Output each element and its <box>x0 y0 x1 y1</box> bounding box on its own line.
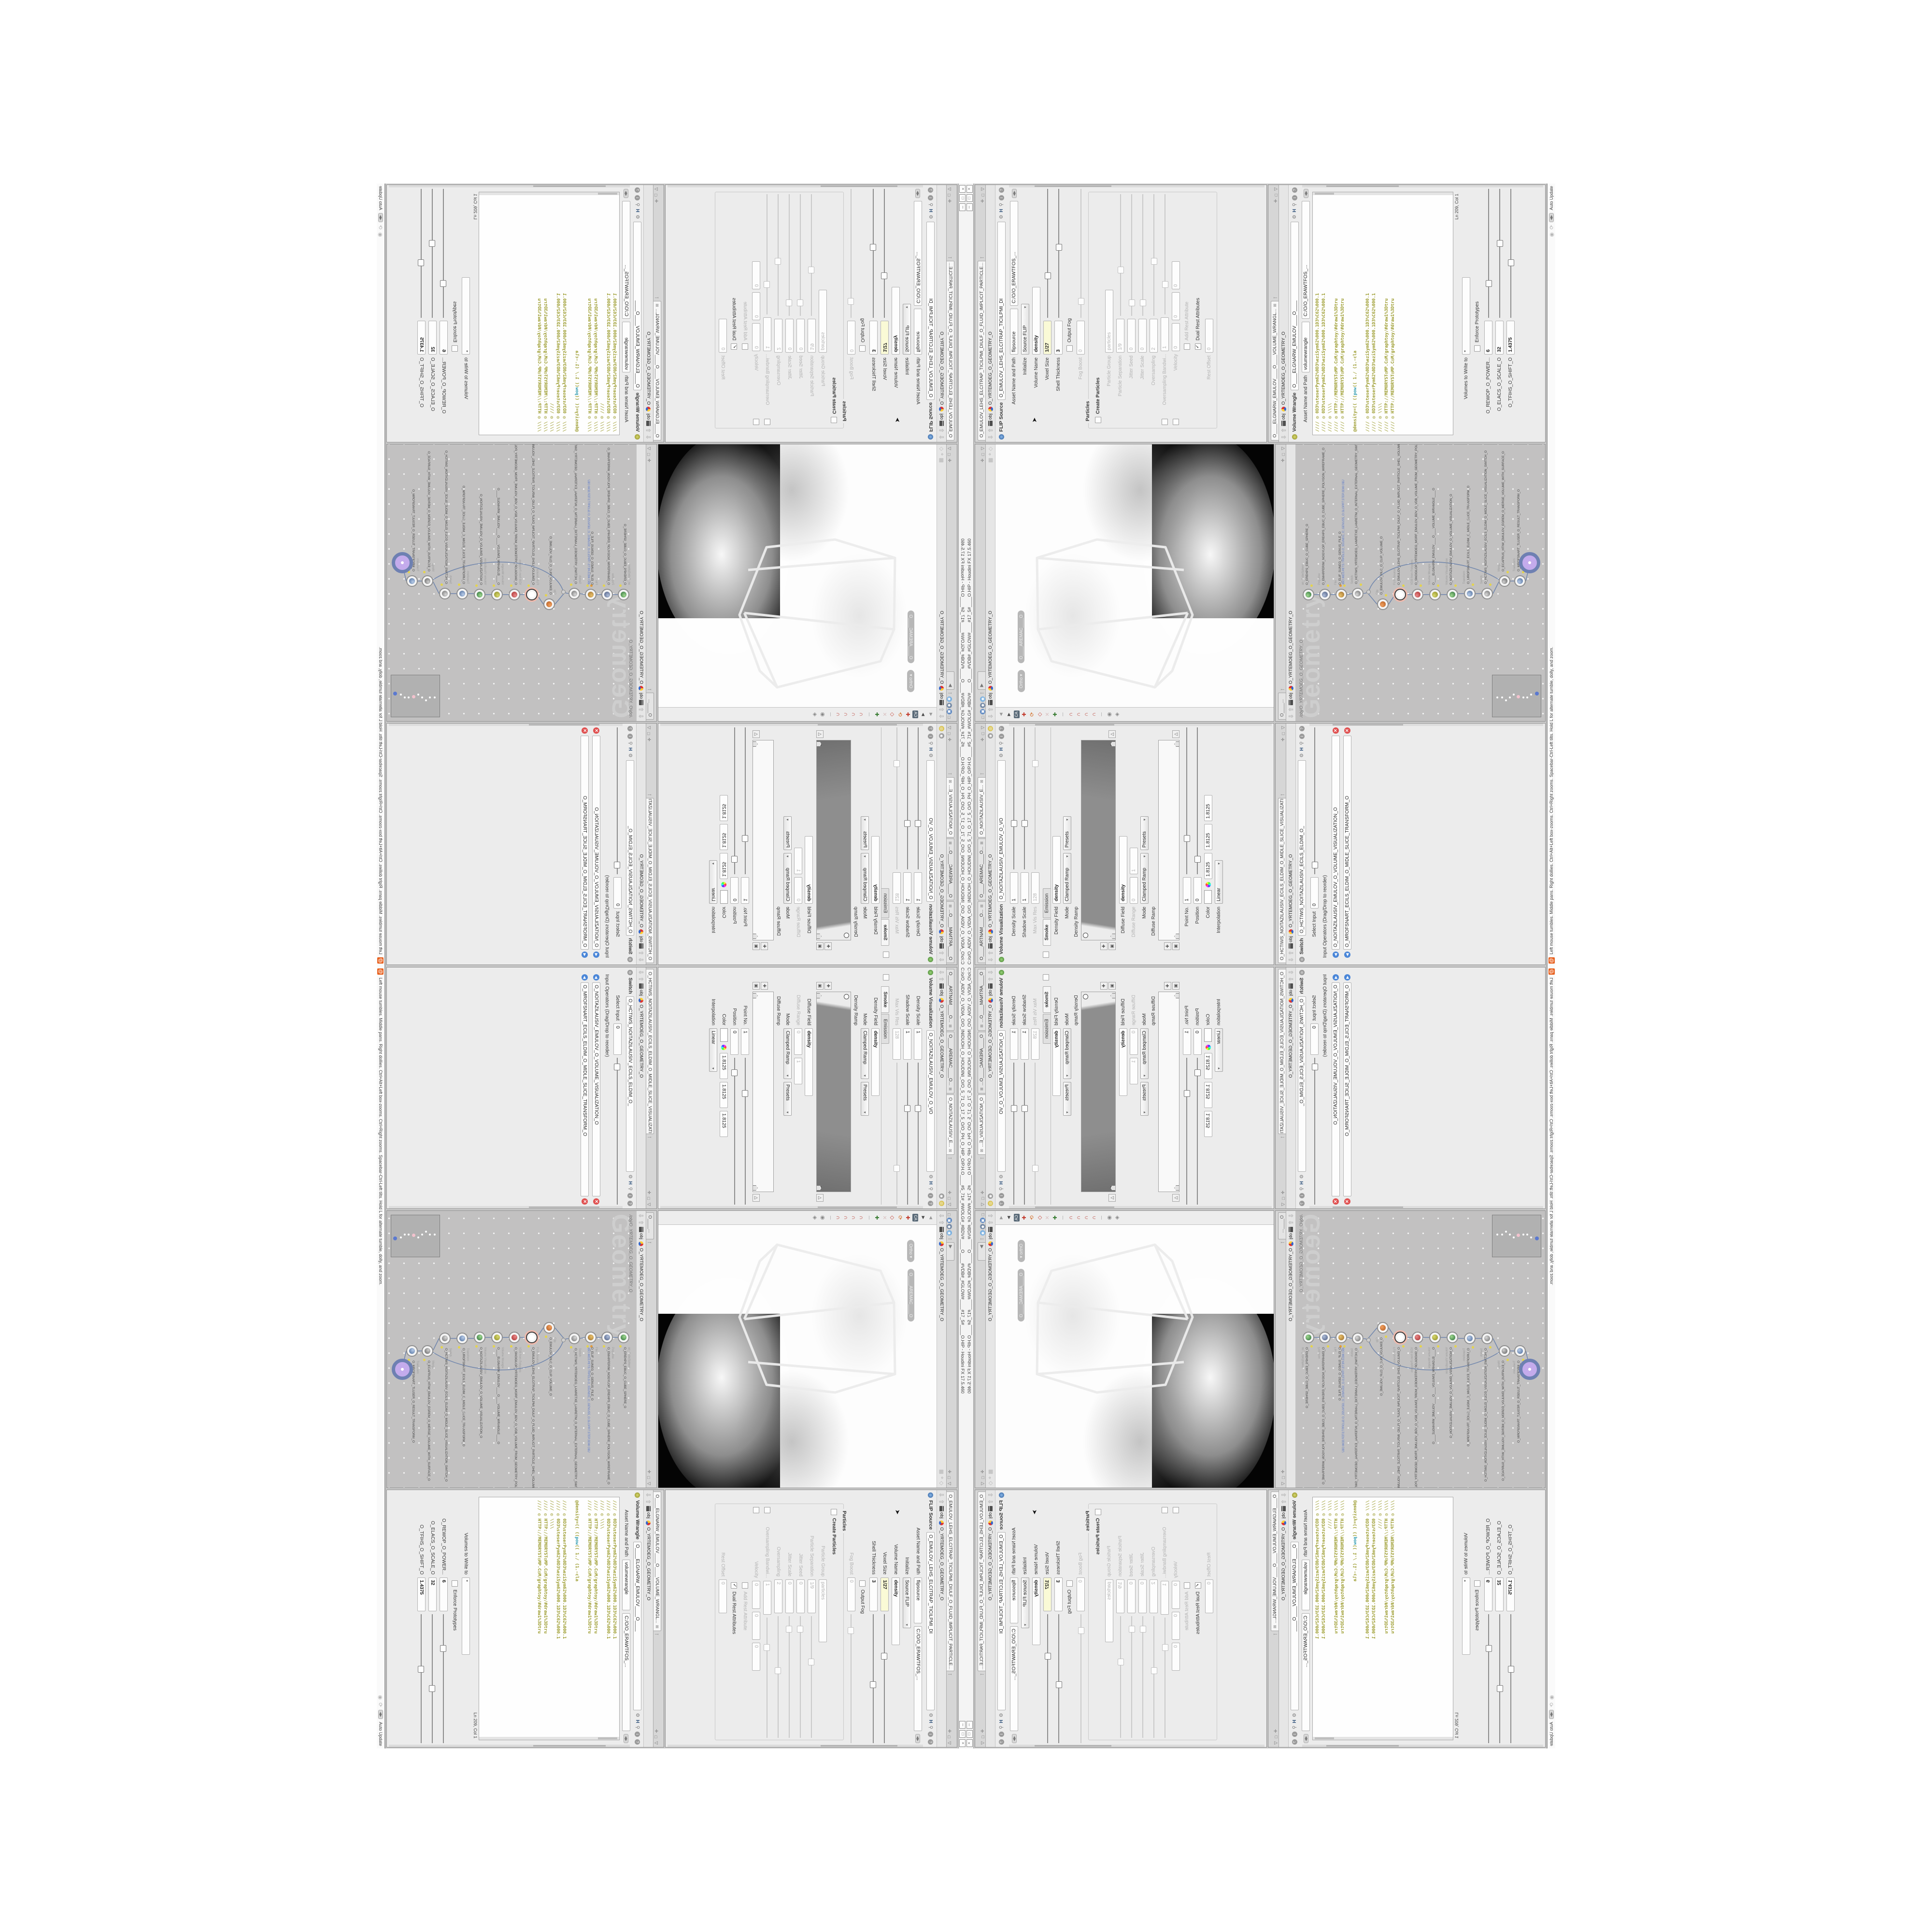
close-tab-icon[interactable]: ⊠ <box>1273 1625 1277 1628</box>
pane-menu-icon[interactable]: ▽ <box>980 1482 985 1485</box>
input-operator-field[interactable]: O_NOITAZILAUSIV_EMULOV_O_VOLUME_VISUALIZ… <box>1332 982 1340 1196</box>
color-r-field[interactable]: 1.8125 <box>720 1053 728 1079</box>
breadcrumb-node-name[interactable]: O_YRTEMOEG_O_GEOMETRY_O <box>639 1248 644 1321</box>
point-no-slider[interactable] <box>1183 1058 1190 1205</box>
back-tool-icon[interactable]: ◄ <box>928 712 934 717</box>
breadcrumb-node-name[interactable]: O_YRTEMOEG_O_GEOMETRY_O <box>939 611 944 684</box>
scale-field[interactable]: 32 <box>428 1577 437 1611</box>
camera-icon[interactable]: ▣ <box>947 1218 952 1223</box>
tab-visualization[interactable]: O_NOITAZILAUSIV_E...⊠ <box>947 1094 954 1155</box>
forward-arrow-icon[interactable]: ⇧ <box>1280 1499 1287 1504</box>
pane-maximize-icon[interactable]: □ <box>646 1197 651 1200</box>
snap-magnet-icon[interactable]: ∩ <box>843 1216 849 1220</box>
breadcrumb-node-name[interactable]: O_YRTEMOEG_O_GEOMETRY_O <box>988 1005 993 1078</box>
snap-grid-icon[interactable]: ▦ <box>987 458 994 463</box>
ramp-marker[interactable] <box>1174 1185 1179 1191</box>
pane-scrollbar[interactable] <box>1302 1745 1543 1747</box>
color-wheel-icon[interactable] <box>1206 1045 1211 1050</box>
particle-group-field[interactable]: particles <box>1105 290 1113 353</box>
volume-name-field[interactable]: density <box>892 287 900 355</box>
close-tab-icon[interactable]: ⊠ <box>980 1024 984 1028</box>
snap-magnet-icon[interactable]: ∩ <box>1083 1216 1089 1220</box>
shadow-scale-slider[interactable] <box>1021 1063 1028 1205</box>
pane-menu-icon[interactable]: ▽ <box>947 1482 952 1485</box>
select-input-slider[interactable] <box>1311 1058 1318 1205</box>
pane-scrollbar[interactable] <box>1009 1745 1264 1747</box>
gear-icon[interactable]: ⚙ <box>1292 215 1297 219</box>
obj-context-chip[interactable]: obj <box>939 936 944 949</box>
jitter-seed-field[interactable]: 0 <box>1127 319 1136 353</box>
density-scale-slider[interactable] <box>915 1063 922 1205</box>
mode2-dropdown[interactable]: Clamped Ramp <box>784 853 792 904</box>
pane-maximize-icon[interactable]: □ <box>646 453 651 455</box>
diffuse-range-max-field[interactable]: 1 <box>795 1058 803 1084</box>
help-icon[interactable]: ? <box>999 726 1004 731</box>
ramp-marker[interactable] <box>753 934 758 939</box>
oversampling-bw-field[interactable]: 1 <box>763 317 771 351</box>
magnifier-icon[interactable]: ⚲ <box>1299 741 1305 745</box>
input-operator-field[interactable]: O_NOITAZILAUSIV_EMULOV_O_VOLUME_VISUALIZ… <box>593 736 601 950</box>
info-icon[interactable]: i <box>928 195 934 200</box>
pane-split-icon[interactable]: ✛ <box>980 199 985 203</box>
rest-offset-field[interactable]: 0 <box>719 319 727 353</box>
minimize-button[interactable]: ─ <box>966 203 973 211</box>
hscript-icon[interactable]: H <box>999 1181 1004 1184</box>
update-mode-arrows-icon[interactable]: ◀▶ <box>378 213 383 222</box>
secure-selection-icon[interactable]: CA <box>912 710 918 718</box>
pin-icon[interactable]: ⊺ <box>646 1241 652 1244</box>
position-slider[interactable] <box>1194 1058 1201 1205</box>
create-particles-checkbox[interactable] <box>831 417 837 423</box>
bulb-icon[interactable]: ◎ <box>939 1201 944 1206</box>
view-options-icon[interactable]: ◇ <box>938 447 945 451</box>
recover-icon[interactable]: ◉ <box>947 1230 952 1236</box>
fog-boost-field[interactable]: 0 <box>1077 1577 1085 1611</box>
field-menu-icon[interactable]: ◀▶ <box>1304 1734 1308 1743</box>
density-ramp-widget[interactable] <box>816 992 851 1192</box>
tab-mantra[interactable]: O____ARTNAM____O...⊠ <box>978 901 985 963</box>
volume-name-field[interactable]: density <box>892 1577 900 1645</box>
pane-split-icon[interactable]: ✛ <box>947 199 952 203</box>
oversampling-slider[interactable] <box>775 1616 782 1738</box>
initialize-dropdown[interactable]: Source FLIP <box>1021 304 1029 355</box>
position-field[interactable]: 0 <box>1193 1028 1202 1055</box>
shadow-scale-slider[interactable] <box>904 727 911 869</box>
ramp-marker[interactable] <box>1174 993 1179 998</box>
gear-icon[interactable]: ⚙ <box>635 1713 640 1717</box>
voxel-size-field[interactable]: 1/27 <box>881 1577 889 1611</box>
snap-magnet-icon[interactable]: ∩ <box>1091 1216 1097 1220</box>
ramp-marker[interactable] <box>753 1185 758 1191</box>
color-wheel-icon[interactable] <box>1206 882 1211 887</box>
back-tool-icon[interactable]: ◄ <box>998 712 1004 717</box>
field-menu-icon[interactable]: ◀▶ <box>916 189 921 198</box>
tab-camera[interactable]: O____AREMAC____O...⊠ <box>978 838 985 900</box>
pane-scrollbar[interactable] <box>668 1745 923 1747</box>
close-tab-icon[interactable]: ⊠ <box>980 1087 984 1091</box>
pane-menu-icon[interactable]: ▽ <box>947 447 952 450</box>
density-field[interactable]: density <box>1052 1028 1061 1096</box>
presets-dropdown[interactable]: Presets <box>861 1082 869 1116</box>
node-volume-visualization[interactable]: Volume VisualizationO_NOITAZILAUSIV_EMUL… <box>1447 1332 1458 1343</box>
hand-tool-icon[interactable]: ◈ <box>812 1216 818 1220</box>
breadcrumb-node-name[interactable]: O_YRTEMOEG_O_GEOMETRY_O <box>988 1527 993 1601</box>
gear-icon[interactable]: ⚙ <box>928 753 934 758</box>
back-arrow-icon[interactable]: ⇩ <box>1280 435 1287 440</box>
pane-scrollbar[interactable] <box>389 185 630 187</box>
tab-stub[interactable]: ▶ <box>978 671 985 690</box>
info-icon[interactable]: i <box>928 1193 934 1198</box>
node-name-field[interactable]: O_HCTIWS_NOITAZILAUSIV_ECILS_ELDIM_O_ <box>1298 760 1306 936</box>
info-icon[interactable]: i <box>999 734 1004 739</box>
node-volume-wrangle[interactable]: Volume WrangleO____ELGNARW_EMULOV____O__… <box>1429 589 1441 600</box>
obj-context-chip[interactable]: obj <box>639 1227 644 1239</box>
shift-field[interactable]: 1.4375 <box>417 1577 426 1611</box>
pane-menu-icon[interactable]: ▽ <box>980 447 985 450</box>
diffuse-field[interactable]: density <box>805 836 813 904</box>
close-button[interactable]: × <box>959 185 966 193</box>
node-vdb-from-polygons[interactable]: VDB from PolygonsO_SNOGILOP_YRTEMOEG_MOR… <box>1412 589 1423 600</box>
position-field[interactable]: 0 <box>1193 877 1202 904</box>
jitter-seed-slider[interactable] <box>797 194 804 316</box>
pane-scrollbar[interactable] <box>1309 1206 1543 1208</box>
obj-context-chip[interactable]: obj <box>646 413 651 426</box>
pane-maximize-icon[interactable]: □ <box>947 453 952 455</box>
camera-pill[interactable]: O____AREMAC____O <box>908 1269 914 1321</box>
pane-maximize-icon[interactable]: □ <box>1281 732 1286 735</box>
asset-path-field[interactable]: C:/O/O_ERAWTFOS_... <box>914 1626 922 1731</box>
add-rest-checkbox[interactable] <box>742 343 748 350</box>
pin-icon[interactable]: ⊺ <box>980 1237 985 1240</box>
pane-maximize-icon[interactable]: □ <box>1274 194 1279 196</box>
velocity-y-field[interactable]: 0 <box>1172 1612 1180 1640</box>
jitter-seed-slider[interactable] <box>1128 194 1135 316</box>
asset-name-field[interactable]: flipsource <box>1010 1577 1018 1623</box>
snap-point-icon[interactable]: ⌖ <box>987 1476 994 1479</box>
density-field[interactable]: density <box>1052 836 1061 904</box>
ramp-zoom-icon[interactable]: △ <box>1108 1194 1116 1202</box>
pin-icon[interactable]: ⊺ <box>980 1157 985 1159</box>
pane-split-icon[interactable]: ✛ <box>1280 738 1286 741</box>
pane-maximize-icon[interactable]: □ <box>947 1477 952 1479</box>
pin-icon[interactable]: ⊺ <box>980 772 985 775</box>
pane-menu-icon[interactable]: ▽ <box>646 1482 652 1485</box>
geometry-box-icon[interactable]: ◆ <box>980 703 985 708</box>
shift-slider[interactable] <box>418 1614 425 1743</box>
secure-selection-icon[interactable]: CA <box>912 1214 918 1221</box>
breadcrumb-node-name[interactable]: O_YRTEMOEG_O_GEOMETRY_O <box>1281 1527 1286 1601</box>
snap-magnet-icon[interactable]: ∩ <box>843 712 849 716</box>
obj-context-chip[interactable]: obj <box>1288 936 1293 949</box>
oversampling-slider[interactable] <box>1151 1616 1157 1738</box>
view-mode-pill[interactable]: Ortho ▾ <box>1018 1240 1025 1262</box>
input-operator-field[interactable]: O_MROFSNART_ECILS_ELDIM_O_MIDLE_SLICE_TR… <box>581 736 589 950</box>
node-volume-wrangle[interactable]: Volume WrangleO____ELGNARW_EMULOV____O__… <box>491 589 503 600</box>
pane-split-icon[interactable]: ✛ <box>1273 199 1279 203</box>
forward-arrow-icon[interactable]: ⇧ <box>987 1499 994 1504</box>
node-merge[interactable]: MergeO_ECAFRUS_HTIW_EMULOV_EGREM_O_MERGE… <box>422 1345 433 1357</box>
jitter-scale-slider[interactable] <box>1139 1616 1146 1738</box>
color-swatch[interactable] <box>1204 1028 1212 1042</box>
particle-separation-field[interactable]: 1/9 <box>808 319 816 353</box>
shell-thickness-slider[interactable] <box>1055 189 1062 318</box>
hscript-icon[interactable]: H <box>635 209 640 212</box>
voxel-size-field[interactable]: 1/27 <box>881 321 889 355</box>
back-arrow-icon[interactable]: ⇩ <box>938 714 945 719</box>
folder-tab-emission[interactable]: Emission <box>882 1014 890 1044</box>
ramp-box-icon[interactable]: ▣ <box>816 942 824 950</box>
obj-context-chip[interactable]: obj <box>646 1506 651 1519</box>
particle-separation-slider[interactable] <box>809 1616 815 1738</box>
node-transform-slice[interactable]: TransformO_MROFSNART_ECILS_ELDIM_O_MIDLE… <box>456 588 468 599</box>
back-arrow-icon[interactable]: ⇩ <box>1288 957 1294 962</box>
folder-tab-emission[interactable]: Emission <box>1043 888 1051 919</box>
help-icon[interactable]: ? <box>1299 1201 1305 1206</box>
asset-path-field[interactable]: C:/O/O_ERAWTFOS_... <box>1302 201 1310 319</box>
obj-context-chip[interactable]: obj <box>1281 1506 1286 1519</box>
jitter-seed-slider[interactable] <box>797 1616 804 1738</box>
power-field[interactable]: 6 <box>440 321 448 355</box>
help-icon[interactable]: ? <box>1292 187 1297 193</box>
volume-name-field[interactable]: density <box>1032 1577 1040 1645</box>
node-name-field[interactable]: O_NOITAZILAUSIV_EMULOV_O_VO <box>927 1030 935 1172</box>
pane-maximize-icon[interactable]: □ <box>947 1197 952 1200</box>
pin-icon[interactable]: ⊺ <box>1273 297 1279 299</box>
restore-button[interactable]: □ <box>966 1730 973 1738</box>
pane-split-icon[interactable]: ✛ <box>980 1729 985 1733</box>
obj-context-chip[interactable]: obj <box>988 693 993 705</box>
hscript-icon[interactable]: H <box>628 747 633 751</box>
pane-split-icon[interactable]: ✛ <box>980 1470 985 1474</box>
node-transform-slice[interactable]: TransformO_MROFSNART_ECILS_ELDIM_O_MIDLE… <box>1464 588 1476 599</box>
camera-icon[interactable]: ▣ <box>980 1218 985 1223</box>
node-switch-visualization[interactable]: SwitchO_HCTIWS_NOITAZILAUSIV_ECILS_ELDIM… <box>1481 1333 1493 1344</box>
create-particles-checkbox[interactable] <box>1095 417 1101 423</box>
pane-maximize-icon[interactable]: □ <box>947 1736 952 1738</box>
output-fog-checkbox[interactable] <box>859 1580 866 1587</box>
close-tab-icon[interactable]: ⊠ <box>980 904 984 908</box>
pane-maximize-icon[interactable]: □ <box>1281 1197 1286 1200</box>
diffuse-range-min-field[interactable]: 0 <box>795 877 803 904</box>
pin-icon[interactable]: ⊺ <box>947 1157 952 1159</box>
reorder-arrow-icon[interactable]: ◀ <box>594 952 600 958</box>
close-tab-icon[interactable]: ⊠ <box>980 841 984 845</box>
volumes-to-write-field[interactable]: * <box>1462 277 1470 355</box>
magnifier-icon[interactable]: ⚲ <box>928 1726 934 1729</box>
pane-split-icon[interactable]: ✛ <box>947 1729 952 1733</box>
pane-menu-icon[interactable]: ▽ <box>1280 447 1286 450</box>
pane-maximize-icon[interactable]: □ <box>947 1213 952 1216</box>
forward-arrow-icon[interactable]: ⇧ <box>1288 1220 1294 1225</box>
density-scale-slider[interactable] <box>1010 1063 1017 1205</box>
magnifier-icon[interactable]: ⚲ <box>999 1187 1004 1191</box>
reorder-arrow-icon[interactable]: ◀ <box>582 974 588 980</box>
obj-context-chip[interactable]: obj <box>988 983 993 996</box>
folder-checkbox[interactable] <box>883 952 890 958</box>
gear-icon[interactable]: ⚙ <box>999 215 1004 219</box>
breadcrumb-node-name[interactable]: O_YRTEMOEG_O_GEOMETRY_O <box>939 331 944 405</box>
forward-arrow-icon[interactable]: ⇧ <box>1288 707 1294 712</box>
breadcrumb-node-name[interactable]: O_YRTEMOEG_O_GEOMETRY_O <box>939 1248 944 1321</box>
hscript-icon[interactable]: H <box>928 1181 934 1184</box>
node-flip-source[interactable]: FLIP SourceO_EMULOV_LEHS_ELCITRAP_TICILP… <box>526 1332 538 1343</box>
recover-icon[interactable]: ◉ <box>947 696 952 702</box>
node-merge[interactable]: MergeO_ECAFRUS_HTIW_EMULOV_EGREM_O_MERGE… <box>422 575 433 587</box>
density-field[interactable]: density <box>872 836 880 904</box>
point-no-slider[interactable] <box>742 1058 749 1205</box>
tab-network[interactable]: O____... <box>646 1212 654 1239</box>
node-switch-geometry[interactable]: SwitchO_HCTIWS_YRTEMOEG_LANRETXE_LANRETN… <box>1352 588 1364 599</box>
folder-tab-smoke[interactable]: Smoke <box>1043 919 1051 946</box>
point-no-field[interactable]: 1 <box>1183 1028 1191 1055</box>
view-tool-icon[interactable]: ◉ <box>1107 1215 1112 1220</box>
target-icon[interactable]: ◉ <box>939 733 944 739</box>
gear-icon[interactable]: ⚙ <box>928 215 934 219</box>
ramp-handle[interactable] <box>1083 933 1088 938</box>
view-options-icon[interactable]: ◇ <box>987 1481 994 1485</box>
forward-arrow-icon[interactable]: ⇧ <box>938 977 945 981</box>
back-arrow-icon[interactable]: ⇩ <box>638 970 645 975</box>
interpolation-dropdown[interactable]: Linear <box>710 860 718 904</box>
gear-icon[interactable]: ⚙ <box>1299 1174 1305 1179</box>
handles-tool-icon[interactable]: ✚ <box>1052 1215 1058 1220</box>
reorder-arrow-icon[interactable]: ◀ <box>594 974 600 980</box>
help-icon[interactable]: ? <box>999 1201 1004 1206</box>
ramp-zoom-icon[interactable]: △ <box>753 1194 760 1202</box>
jitter-seed-field[interactable]: 0 <box>796 1579 805 1613</box>
camera-icon[interactable]: ▣ <box>980 709 985 714</box>
back-arrow-icon[interactable]: ⇩ <box>938 1213 945 1218</box>
forward-arrow-icon[interactable]: ⇧ <box>645 428 652 433</box>
network-minimap[interactable] <box>1492 1215 1541 1257</box>
oversampling-bw-field[interactable]: 1 <box>1161 1581 1169 1615</box>
dual-rest-checkbox[interactable]: ✓ <box>1195 343 1201 350</box>
node-transform-slice[interactable]: TransformO_MROFSNART_ECILS_ELDIM_O_MIDLE… <box>456 1333 468 1344</box>
view-options-icon[interactable]: ◇ <box>987 447 994 451</box>
node-transform-result[interactable]: TransformO_MROFSNART_TLUSER_O_RESULT_TRA… <box>406 1345 418 1357</box>
tab-network[interactable]: O____... <box>1278 1212 1286 1239</box>
magnifier-icon[interactable]: ⚲ <box>1292 1726 1297 1729</box>
volume-name-field[interactable]: density <box>1032 287 1040 355</box>
oversampling-field[interactable]: 2 <box>774 319 782 353</box>
input-operator-field[interactable]: O_MROFSNART_ECILS_ELDIM_O_MIDLE_SLICE_TR… <box>1343 982 1351 1196</box>
node-merge[interactable]: MergeO_ECAFRUS_HTIW_EMULOV_EGREM_O_MERGE… <box>1499 575 1510 587</box>
velocity-checkbox[interactable] <box>753 1507 759 1513</box>
scale-slider[interactable] <box>429 189 436 318</box>
close-tab-icon[interactable]: ⊠ <box>948 1087 952 1091</box>
snap-magnet-icon[interactable]: ∩ <box>1076 1216 1081 1220</box>
update-mode-selector[interactable]: Auto Update <box>1549 1722 1554 1746</box>
node-name-field[interactable]: O_NOITAZILAUSIV_EMULOV_O_VO <box>927 760 935 902</box>
pin-icon[interactable]: ⊺ <box>980 1673 985 1676</box>
mode-dropdown[interactable]: Clamped Ramp <box>1063 853 1071 904</box>
ramp-add-icon[interactable]: ✚ <box>1164 942 1171 950</box>
select-input-field[interactable]: 0 <box>1310 877 1319 909</box>
node-polywire[interactable]: PolyWireO_EMARFERIW_NOGYLOP_EREHPS_EBUC_… <box>1319 1332 1331 1343</box>
diffuse-range-min-field[interactable]: 0 <box>795 1028 803 1055</box>
network-minimap[interactable] <box>1492 675 1541 717</box>
close-tab-icon[interactable]: ⊠ <box>980 1149 984 1152</box>
move-tool-icon[interactable]: ✚ <box>905 1215 910 1220</box>
secure-selection-icon[interactable]: CA <box>1014 710 1020 718</box>
density-field[interactable]: density <box>872 1028 880 1096</box>
input-operator-field[interactable]: O_MROFSNART_ECILS_ELDIM_O_MIDLE_SLICE_TR… <box>1343 736 1351 950</box>
position-slider[interactable] <box>1194 727 1201 874</box>
reorder-arrow-icon[interactable]: ◀ <box>1333 974 1339 980</box>
color-g-field[interactable]: 1.8125 <box>1204 824 1212 850</box>
snap-grid-icon[interactable]: ▦ <box>987 1469 994 1474</box>
code-scrollbar[interactable] <box>1313 1737 1453 1740</box>
field-menu-icon[interactable]: ◀▶ <box>916 1734 921 1743</box>
back-arrow-icon[interactable]: ⇩ <box>987 714 994 719</box>
node-switch-visualization[interactable]: SwitchO_HCTIWS_NOITAZILAUSIV_ECILS_ELDIM… <box>439 588 451 599</box>
view-mode-pill[interactable]: Ortho ▾ <box>1018 670 1025 692</box>
shadow-scale-field[interactable]: 1 <box>904 1028 912 1060</box>
asset-path-field[interactable]: C:/O/O_ERAWTFOS_... <box>1010 201 1018 306</box>
max-vis-res-field[interactable]: 128 <box>893 872 901 904</box>
tab-mantra[interactable]: O____ARTNAM____O...⊠ <box>947 901 954 963</box>
info-icon[interactable]: i <box>635 195 640 200</box>
enforce-prototypes-checkbox[interactable] <box>452 345 458 352</box>
forward-arrow-icon[interactable]: ⇧ <box>987 707 994 712</box>
target-icon[interactable]: ◉ <box>939 1193 944 1199</box>
obj-context-chip[interactable]: obj <box>939 693 944 705</box>
voxel-size-slider[interactable] <box>1044 189 1051 318</box>
back-tool-icon[interactable]: ◄ <box>998 1215 1004 1221</box>
pane-menu-icon[interactable]: ▽ <box>980 1203 985 1206</box>
hscript-icon[interactable]: H <box>1299 1181 1305 1184</box>
velocity-checkbox[interactable] <box>1173 419 1179 425</box>
oversampling-field[interactable]: 2 <box>774 1579 782 1613</box>
presets2-dropdown[interactable]: Presets <box>1140 1082 1149 1116</box>
breadcrumb-node-name[interactable]: O_YRTEMOEG_O_GEOMETRY_O <box>639 1005 644 1078</box>
fog-boost-field[interactable]: 0 <box>847 1577 855 1611</box>
info-icon[interactable]: i <box>1299 734 1305 739</box>
magnifier-icon[interactable]: ⚲ <box>928 1187 934 1191</box>
ramp-box-icon[interactable]: ▣ <box>1172 982 1179 990</box>
rotate-tool-icon[interactable]: ⟳ <box>1029 1215 1035 1220</box>
back-arrow-icon[interactable]: ⇩ <box>938 1492 945 1497</box>
obj-context-chip[interactable]: obj <box>1281 413 1286 426</box>
refresh-icon[interactable]: ⟳ <box>378 1703 384 1707</box>
close-tab-icon[interactable]: ⊠ <box>948 904 952 908</box>
help-icon[interactable]: ? <box>628 1201 633 1206</box>
color-b-field[interactable]: 1.8125 <box>1204 1111 1212 1137</box>
tab-volume-wrangle[interactable]: O____ELGNARW_EMULOV____O____VOLUME_WRANG… <box>653 301 661 440</box>
hscript-icon[interactable]: H <box>628 1181 633 1184</box>
move-tool-icon[interactable]: ✚ <box>1022 712 1027 716</box>
breadcrumb-node-name[interactable]: O_YRTEMOEG_O_GEOMETRY_O <box>1288 854 1293 927</box>
oversampling-slider[interactable] <box>1151 194 1157 316</box>
tab-volume-wrangle[interactable]: O____ELGNARW_EMULOV____O____VOLUME_WRANG… <box>1271 301 1279 440</box>
input-operator-field[interactable]: O_NOITAZILAUSIV_EMULOV_O_VOLUME_VISUALIZ… <box>1332 736 1340 950</box>
tab-visualization[interactable]: O_NOITAZILAUSIV_E...⊠ <box>978 1094 985 1155</box>
node-vdb-from-polygons[interactable]: VDB from PolygonsO_SNOGILOP_YRTEMOEG_MOR… <box>1412 1332 1423 1343</box>
node-transform-slice[interactable]: TransformO_MROFSNART_ECILS_ELDIM_O_MIDLE… <box>1464 1333 1476 1344</box>
node-display-output[interactable] <box>1519 1359 1540 1380</box>
shift-slider[interactable] <box>1507 189 1514 318</box>
breadcrumb-node-name[interactable]: O_YRTEMOEG_O_GEOMETRY_O <box>988 854 993 927</box>
color-r-field[interactable]: 1.8125 <box>1204 853 1212 879</box>
asset-path-field[interactable]: C:/O/O_ERAWTFOS_... <box>1302 1613 1310 1731</box>
pane-maximize-icon[interactable]: □ <box>980 716 985 719</box>
info-icon[interactable]: i <box>635 1732 640 1737</box>
color-swatch[interactable] <box>720 1028 728 1042</box>
node-merge[interactable]: MergeO_ECAFRUS_HTIW_EMULOV_EGREM_O_MERGE… <box>1499 1345 1510 1357</box>
scale-slider[interactable] <box>1496 189 1503 318</box>
color-wheel-icon[interactable] <box>722 882 727 887</box>
pane-maximize-icon[interactable]: □ <box>980 453 985 455</box>
